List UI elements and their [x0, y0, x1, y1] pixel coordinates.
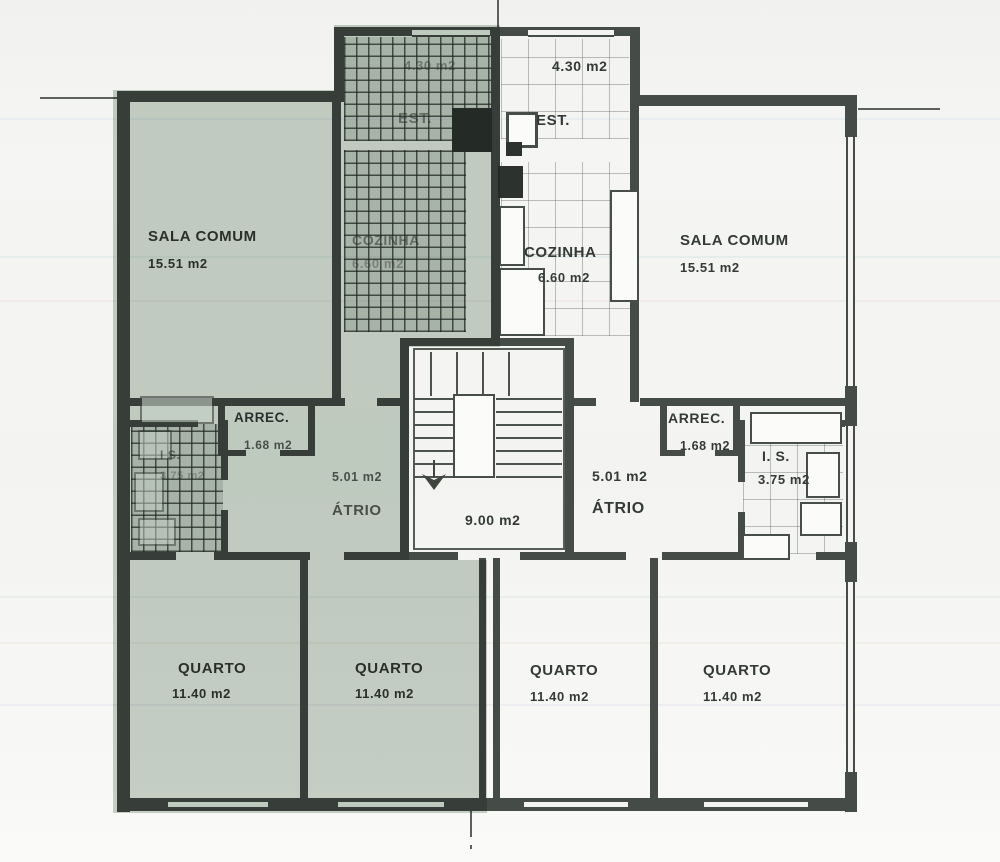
- wall-quartos-left-c: [344, 552, 404, 560]
- room-name: I S.: [160, 448, 205, 462]
- room-name: QUARTO: [703, 662, 771, 679]
- room-label-est-left-area: 4.30 m2: [404, 58, 456, 73]
- room-name: EST.: [536, 112, 570, 129]
- wall-hall-left-c: [377, 398, 401, 406]
- wall-hall-right-c: [736, 398, 845, 406]
- room-name: COZINHA: [524, 244, 644, 261]
- room-area: 15.51 m2: [148, 256, 318, 271]
- window-quarto-right-2: [704, 800, 808, 809]
- room-label-est-right-area: 4.30 m2: [552, 58, 608, 74]
- window-top-right: [528, 28, 614, 37]
- wall-stair-top: [400, 338, 574, 346]
- window-quarto-left-1: [168, 800, 268, 809]
- room-label-sala-left: SALA COMUM 15.51 m2: [148, 228, 318, 271]
- wall-is-left-side: [221, 420, 228, 480]
- room-name: SALA COMUM: [148, 228, 318, 245]
- wall-hall-left-b: [315, 398, 345, 406]
- wall-left-outer: [117, 91, 130, 812]
- is-right-sink: [806, 452, 840, 498]
- wall-quartos-left-b: [214, 552, 310, 560]
- reference-line-right: [858, 108, 940, 110]
- room-area: 4.30 m2: [552, 58, 608, 74]
- staircase-right-run: [496, 398, 562, 484]
- room-area: 9.00 m2: [465, 512, 521, 528]
- reference-line-bottom: [470, 811, 472, 837]
- wall-quartos-right-a: [574, 552, 626, 560]
- room-label-est-left: EST.: [398, 110, 432, 127]
- reference-line-top: [497, 0, 499, 27]
- room-name: QUARTO: [178, 660, 246, 677]
- room-area: 11.40 m2: [703, 689, 771, 704]
- room-label-cozinha-left: COZINHA 6.60 m2: [352, 232, 462, 271]
- room-label-quarto-left-2: QUARTO 11.40 m2: [355, 660, 423, 701]
- wall-top-left-wing: [117, 91, 340, 102]
- room-name: I. S.: [762, 448, 810, 464]
- vent-shaft: [452, 108, 492, 152]
- wall-is-right-side: [738, 420, 745, 482]
- window-quarto-left-2: [338, 800, 444, 809]
- room-label-quarto-right-1: QUARTO 11.40 m2: [530, 662, 598, 704]
- room-area: 15.51 m2: [680, 260, 850, 275]
- reference-line-left: [40, 97, 118, 99]
- room-area: 11.40 m2: [530, 689, 598, 704]
- wall-top-block-right: [630, 27, 640, 102]
- wall-arrec-right-top: [660, 398, 740, 406]
- room-area: 1.68 m2: [680, 439, 730, 453]
- room-name: SALA COMUM: [680, 232, 850, 249]
- room-area: 3.75 m2: [160, 470, 205, 482]
- wall-stair-bottom-right: [520, 552, 566, 560]
- wall-stair-left: [400, 338, 409, 560]
- room-name: ARREC.: [668, 410, 730, 426]
- room-label-arrec-right: ARREC. 1.68 m2: [668, 410, 730, 453]
- wall-sala-left-cozinha: [332, 100, 341, 402]
- room-label-is-left: I S. 3.75 m2: [160, 448, 205, 482]
- room-area: 1.68 m2: [244, 438, 292, 452]
- wall-top-right-wing: [630, 95, 857, 106]
- wall-right-chunk: [845, 542, 857, 582]
- wall-divider-bottom-b: [493, 558, 500, 800]
- room-label-is-right: I. S. 3.75 m2: [762, 448, 810, 487]
- stairs-down-arrow: [412, 460, 456, 494]
- room-area: 11.40 m2: [172, 686, 246, 701]
- room-label-arrec-left: ARREC. 1.68 m2: [234, 410, 292, 452]
- vent-shaft: [506, 142, 522, 156]
- staircase-central-shaft: [453, 394, 495, 478]
- wall-arrec-right-side: [660, 398, 667, 456]
- is-right-bidet: [742, 534, 790, 560]
- wall-divider-bottom-a: [479, 558, 486, 800]
- room-label-quarto-right-2: QUARTO 11.40 m2: [703, 662, 771, 704]
- window-quarto-right-1: [524, 800, 628, 809]
- room-name: ÁTRIO: [332, 502, 382, 519]
- wall-between-quartos-left: [300, 558, 308, 800]
- room-label-atrio-left: 5.01 m2 ÁTRIO: [332, 470, 382, 519]
- room-name: EST.: [398, 110, 432, 127]
- kitchen-counter-right: [499, 206, 525, 266]
- room-name: ÁTRIO: [592, 500, 648, 518]
- room-area: 3.75 m2: [758, 472, 810, 487]
- room-area: 5.01 m2: [592, 468, 648, 484]
- is-right-cabinet: [750, 412, 842, 444]
- reference-line-bottom-dot: [470, 845, 472, 849]
- wall-stair-right: [565, 338, 574, 560]
- wall-stair-bottom-left: [408, 552, 458, 560]
- room-label-cozinha-right: COZINHA 6.60 m2: [524, 244, 644, 285]
- wall-right-chunk: [845, 95, 857, 137]
- is-left-bidet: [138, 518, 176, 546]
- room-area: 5.01 m2: [332, 470, 382, 484]
- is-right-toilet: [800, 502, 842, 536]
- room-area: 6.60 m2: [538, 270, 644, 285]
- room-area: 6.60 m2: [352, 256, 462, 271]
- room-label-quarto-left-1: QUARTO 11.40 m2: [178, 660, 246, 701]
- wall-right-chunk: [845, 386, 857, 426]
- vent-shaft: [498, 166, 523, 198]
- is-left-cabinet: [140, 396, 214, 424]
- wall-quartos-left-a: [130, 552, 176, 560]
- stairwell-area-label: 9.00 m2: [465, 512, 521, 528]
- wall-between-quartos-right: [650, 558, 658, 800]
- floor-plan: SALA COMUM 15.51 m2 COZINHA 6.60 m2 4.30…: [0, 0, 1000, 862]
- window-right-wall: [846, 100, 855, 810]
- wall-quartos-right-c: [816, 552, 845, 560]
- room-name: QUARTO: [530, 662, 598, 679]
- wall-arrec-left-top: [218, 398, 315, 406]
- room-name: ARREC.: [234, 410, 292, 425]
- room-label-sala-right: SALA COMUM 15.51 m2: [680, 232, 850, 275]
- room-label-atrio-right: 5.01 m2 ÁTRIO: [592, 468, 648, 518]
- room-area: 4.30 m2: [404, 58, 456, 73]
- wall-hall-right-a: [574, 398, 596, 406]
- room-area: 11.40 m2: [355, 686, 423, 701]
- wall-top-block-left: [334, 27, 344, 102]
- wall-arrec-left-side: [308, 398, 315, 456]
- room-label-est-right: EST.: [536, 112, 570, 129]
- window-top-left: [412, 28, 490, 37]
- room-name: COZINHA: [352, 232, 462, 248]
- room-name: QUARTO: [355, 660, 423, 677]
- wall-is-left-side: [221, 510, 228, 558]
- staircase-upper-flight: [430, 352, 534, 396]
